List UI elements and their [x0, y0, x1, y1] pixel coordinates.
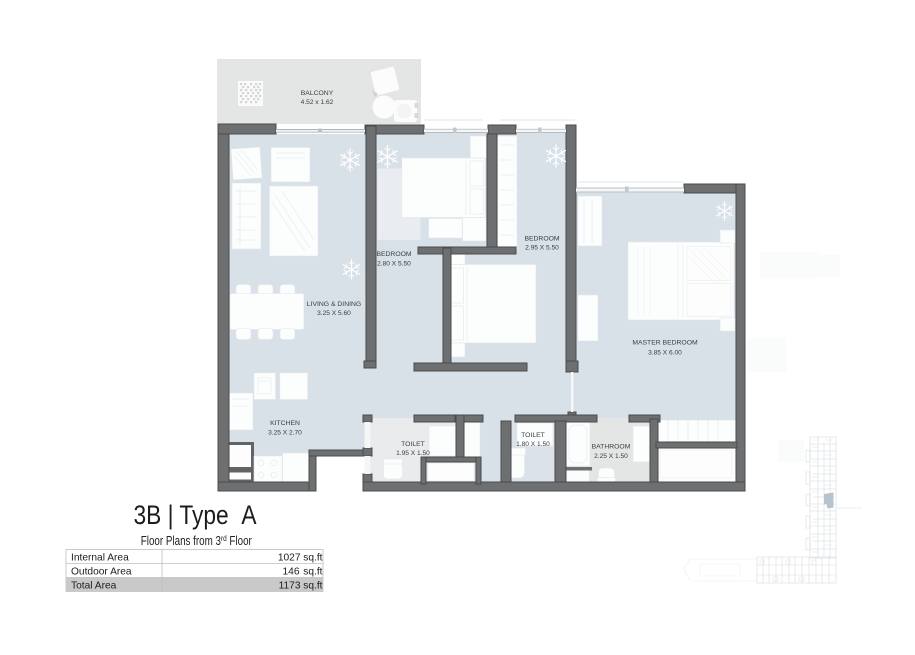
svg-text:sq.ft: sq.ft — [303, 581, 322, 592]
svg-text:Total Area: Total Area — [71, 581, 117, 592]
svg-text:146: 146 — [283, 567, 300, 578]
svg-text:TOILET: TOILET — [401, 441, 425, 448]
svg-text:Outdoor Area: Outdoor Area — [71, 567, 132, 578]
svg-text:1027: 1027 — [278, 553, 301, 564]
svg-text:2.80 X 5.50: 2.80 X 5.50 — [377, 261, 411, 268]
svg-text:BEDROOM: BEDROOM — [376, 251, 411, 258]
svg-text:3B | Type A: 3B | Type A — [134, 500, 257, 530]
svg-text:3.25 X 5.60: 3.25 X 5.60 — [317, 310, 351, 317]
svg-text:KITCHEN: KITCHEN — [270, 420, 300, 427]
svg-text:MASTER BEDROOM: MASTER BEDROOM — [632, 340, 698, 347]
svg-text:3.25 X 2.70: 3.25 X 2.70 — [268, 430, 302, 437]
svg-text:1173: 1173 — [279, 581, 301, 592]
svg-text:BEDROOM: BEDROOM — [524, 236, 559, 243]
svg-text:4.52 x 1.62: 4.52 x 1.62 — [301, 99, 334, 106]
svg-text:1.95 X 1.50: 1.95 X 1.50 — [396, 450, 430, 457]
svg-text:3.85 X 6.00: 3.85 X 6.00 — [648, 350, 682, 357]
svg-text:sq.ft: sq.ft — [303, 553, 322, 564]
svg-text:2.25 X 1.50: 2.25 X 1.50 — [594, 453, 628, 460]
svg-text:sq.ft: sq.ft — [303, 567, 322, 578]
svg-text:Internal Area: Internal Area — [71, 553, 129, 564]
svg-text:2.95 X 5.50: 2.95 X 5.50 — [525, 245, 559, 252]
svg-text:LIVING & DINING: LIVING & DINING — [307, 301, 361, 308]
svg-text:BALCONY: BALCONY — [301, 90, 334, 97]
svg-text:BATHROOM: BATHROOM — [592, 444, 631, 451]
svg-text:1.80 X 1.50: 1.80 X 1.50 — [516, 441, 550, 448]
svg-text:Floor Plans from 3rd Floor: Floor Plans from 3rd Floor — [141, 533, 253, 548]
svg-text:TOILET: TOILET — [521, 432, 545, 439]
